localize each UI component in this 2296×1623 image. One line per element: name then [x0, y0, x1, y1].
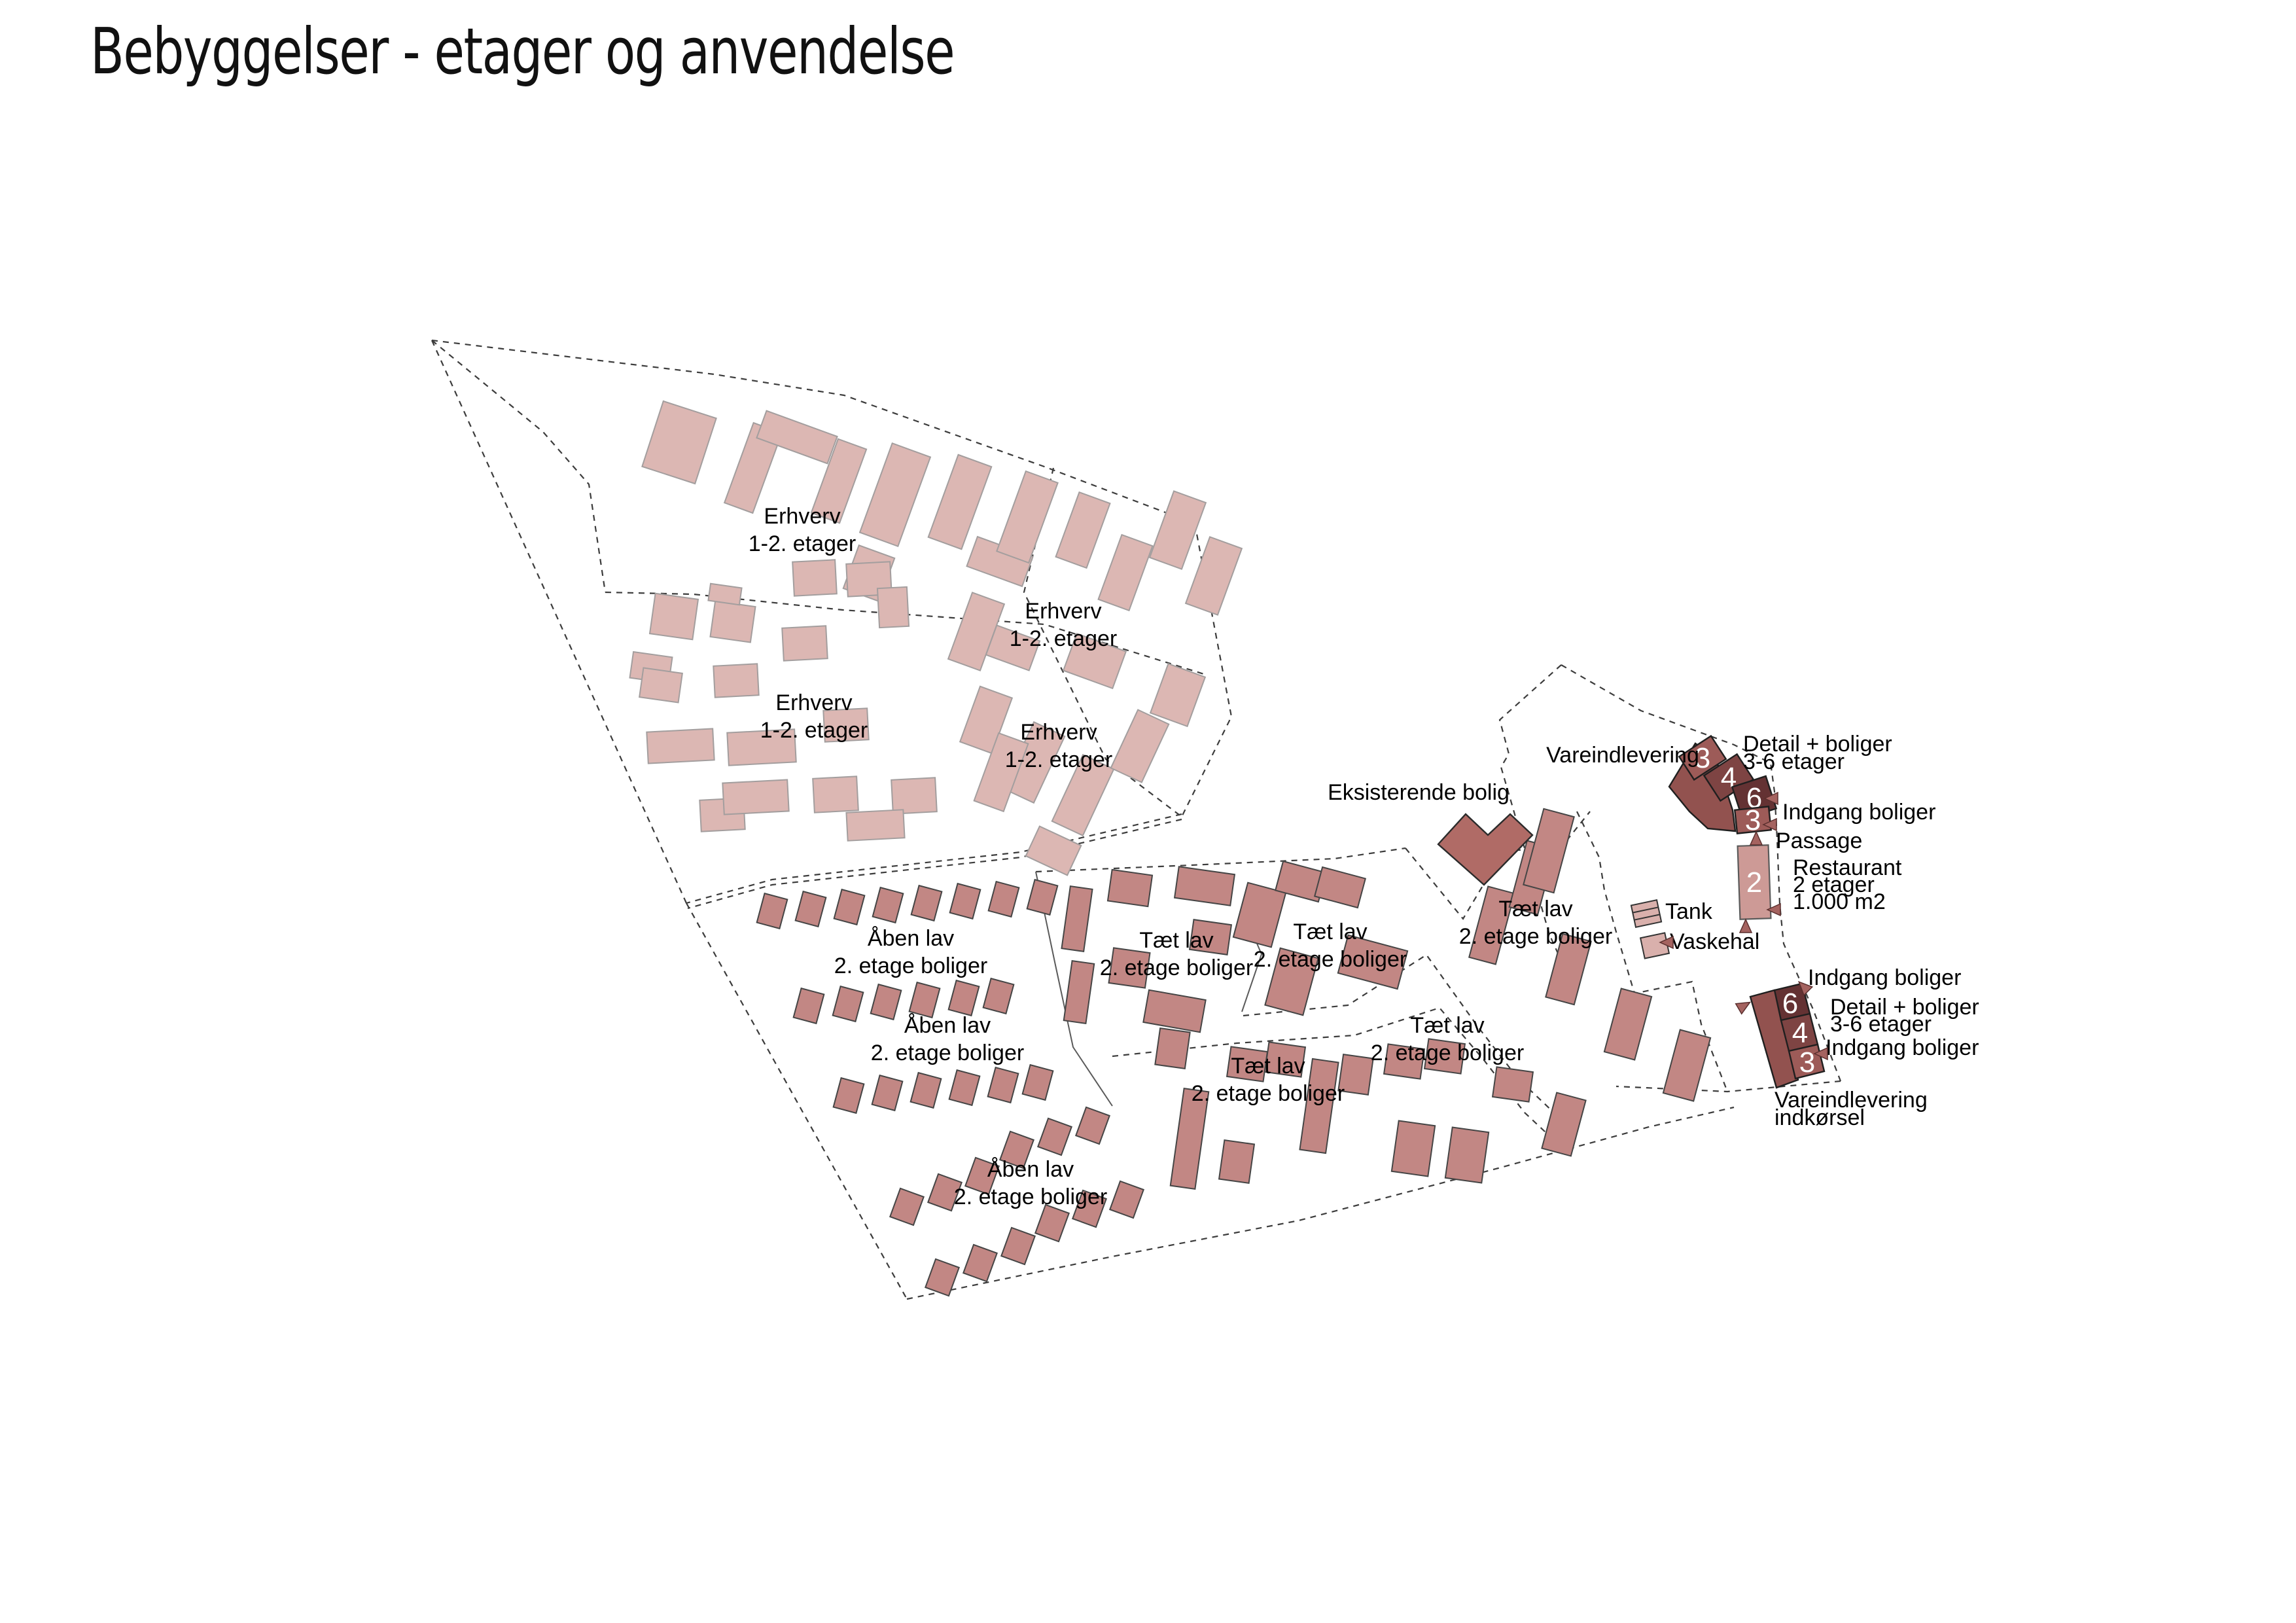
building [1110, 1181, 1143, 1218]
building [1076, 1107, 1109, 1144]
building [1023, 1065, 1053, 1100]
building [834, 889, 865, 925]
building [710, 601, 755, 642]
map-label: Indgang boliger [1826, 1035, 1979, 1060]
building [1492, 1067, 1533, 1101]
building-floor-count: 6 [1782, 988, 1798, 1020]
building-floor-count: 4 [1792, 1017, 1808, 1049]
building [1155, 1028, 1190, 1069]
building [989, 882, 1019, 917]
map-label: Passage [1776, 829, 1862, 853]
building [997, 471, 1057, 563]
building [639, 668, 682, 703]
building [782, 626, 828, 660]
building [1001, 1228, 1034, 1264]
building [722, 779, 788, 814]
building [1150, 491, 1206, 569]
building [1035, 1205, 1069, 1241]
building [757, 893, 788, 929]
building [949, 1070, 980, 1105]
building [988, 1067, 1019, 1103]
map-label: Åben lav2. etage boliger [834, 926, 987, 978]
building [1056, 492, 1110, 568]
building [873, 887, 904, 923]
building [1061, 886, 1092, 952]
building [1143, 990, 1205, 1033]
building [794, 988, 824, 1024]
map-label: Erhverv1-2. etager [1010, 599, 1117, 651]
building [949, 980, 980, 1016]
building-floor-count: 3 [1799, 1046, 1815, 1079]
tank-icon [1631, 900, 1661, 927]
map-label: Vareindleveringindkørsel [1775, 1088, 1928, 1130]
building [1299, 1059, 1338, 1153]
map-label: Detail + boliger3-6 etager [1743, 732, 1892, 774]
building [1186, 537, 1242, 615]
building [1315, 867, 1366, 908]
parcel-boundary [1036, 848, 1405, 872]
building [642, 401, 716, 484]
building [834, 1078, 864, 1113]
building [1233, 883, 1286, 948]
building [846, 810, 904, 840]
building [1150, 664, 1205, 726]
building [1111, 710, 1169, 783]
building [1174, 866, 1235, 906]
building [872, 1075, 903, 1111]
site-plan: 34632643Erhverv1-2. etagerErhverv1-2. et… [0, 0, 2296, 1623]
building-floor-count: 2 [1746, 866, 1762, 899]
building [1604, 988, 1651, 1060]
building [911, 1073, 942, 1108]
building [833, 986, 864, 1022]
building [1445, 1127, 1489, 1183]
building [871, 984, 902, 1020]
map-label: Åben lav2. etage boliger [871, 1013, 1024, 1065]
building [1108, 870, 1152, 906]
building [983, 978, 1014, 1014]
building [1392, 1120, 1435, 1176]
parcel-boundary [432, 340, 686, 903]
map-label: Tank [1665, 899, 1713, 924]
building [963, 1245, 997, 1281]
building [1219, 1140, 1254, 1183]
map-label: Indgang boliger [1808, 965, 1961, 990]
map-label: Indgang boliger [1782, 800, 1935, 825]
building [713, 664, 758, 697]
building [928, 455, 992, 549]
building [1026, 827, 1082, 876]
vaskehal-icon [1640, 933, 1669, 958]
map-label: Detail + boliger3-6 etager [1830, 995, 1979, 1037]
building [925, 1259, 959, 1296]
map-label: Tæt lav2. etage boliger [1371, 1013, 1524, 1065]
building [890, 1188, 923, 1225]
building [1099, 535, 1153, 611]
building [877, 587, 909, 628]
map-label: Eksisterende bolig [1328, 780, 1510, 805]
building [792, 560, 837, 596]
building [910, 982, 940, 1018]
building [650, 594, 698, 640]
map-label: Restaurant2 etager1.000 m2 [1793, 855, 1902, 914]
building [860, 443, 930, 546]
building [891, 777, 937, 813]
building [1027, 880, 1058, 915]
building [646, 728, 714, 763]
building [813, 776, 858, 812]
building [708, 584, 741, 605]
direction-arrow-icon [1740, 919, 1752, 933]
building [911, 885, 942, 921]
map-label: Erhverv1-2. etager [749, 504, 856, 556]
parcel-boundary [432, 340, 605, 592]
building-floor-count: 3 [1745, 804, 1761, 836]
building [1064, 961, 1094, 1024]
map-label: Vareindlevering [1546, 743, 1699, 768]
building [950, 883, 981, 919]
building [1038, 1118, 1071, 1155]
building [796, 891, 826, 927]
